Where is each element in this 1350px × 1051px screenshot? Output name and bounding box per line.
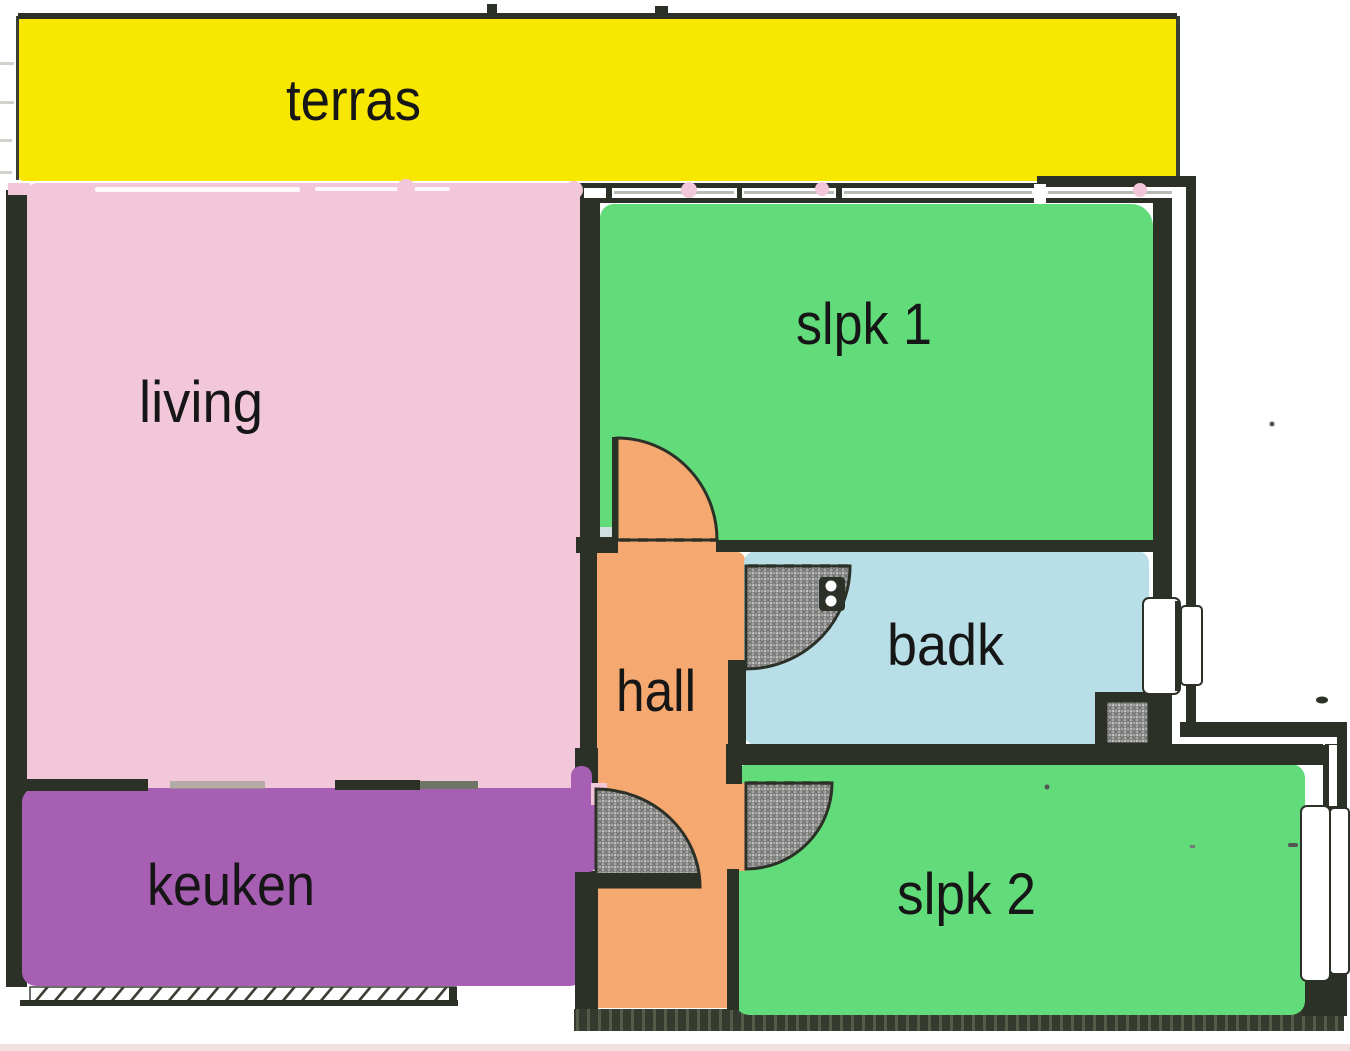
svg-text:keuken: keuken [147, 853, 315, 918]
svg-text:terras: terras [286, 68, 421, 133]
svg-text:slpk 1: slpk 1 [796, 292, 932, 357]
svg-text:living: living [139, 370, 263, 435]
svg-text:badk: badk [887, 613, 1005, 678]
svg-text:hall: hall [616, 659, 696, 724]
svg-text:slpk 2: slpk 2 [897, 862, 1036, 927]
